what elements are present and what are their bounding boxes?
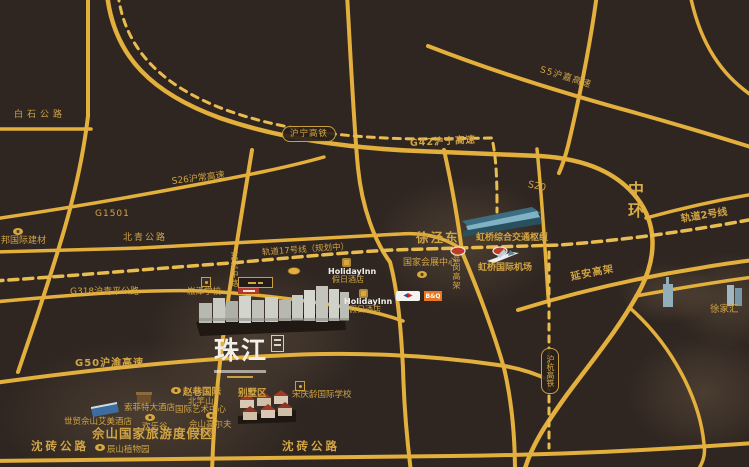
lemeridien-hotel-render <box>91 402 119 417</box>
project-name: 珠江 <box>214 331 268 367</box>
carrefour-logo: ◀▶ <box>396 291 420 301</box>
poi-label-soong-school: 宋庆龄国际学校 <box>292 391 352 400</box>
road-label-g50: G50沪渝高速 <box>75 359 144 369</box>
bq-logo: B&Q <box>424 291 442 301</box>
poi-label-hongqiao-airport: 虹桥国际机场 <box>478 264 532 273</box>
songze-school-icon <box>201 277 211 287</box>
chenshan-icon <box>95 444 105 451</box>
station-rail17-marker <box>288 268 300 275</box>
road-topright-corner <box>690 0 749 97</box>
poi-label-xujiahui: 徐家汇 <box>710 305 739 315</box>
poi-label-hongqiao-hub: 虹桥综合交通枢纽 <box>476 234 548 243</box>
necc-icon <box>417 271 427 278</box>
golf-icon <box>206 412 216 419</box>
road-s5 <box>428 46 749 148</box>
road-label-shenzhuan-east: 沈砖公路 <box>282 441 340 453</box>
road-label-beiqing: 北青公路 <box>123 234 167 243</box>
poi-label-sofitel: 索菲特大酒店 <box>124 404 175 413</box>
project-logo-caption-bar <box>214 370 266 373</box>
poi-label-bang-intl: 邦国际建材 <box>1 237 46 246</box>
road-left-vertical <box>18 0 88 372</box>
poi-label-xujingdong: 徐泾东 <box>416 232 460 245</box>
project-marker-badge <box>238 277 273 288</box>
poi-label-holiday-inn-2-cn: 假日酒店 <box>349 306 381 314</box>
airplane-icon <box>487 249 519 263</box>
road-network <box>0 0 749 467</box>
road-label-jiasong: 嘉松中路 <box>230 252 238 288</box>
zhaoxiang-intl-icon <box>171 387 181 394</box>
road-label-g318: G318沪青平公路 <box>70 288 139 297</box>
holiday-inn-icon-1 <box>342 258 351 267</box>
location-map: 白石公路 沪宁高铁 G42沪宁高速 S5沪嘉高速 S26沪常高速 G1501 北… <box>0 0 749 467</box>
huhang-hsr-label: 沪杭高铁 <box>546 355 554 387</box>
huning-hsr-label: 沪宁高铁 <box>290 130 328 139</box>
poi-label-necc: 国家会展中心 <box>403 259 457 268</box>
road-label-baishi: 白石公路 <box>14 111 66 120</box>
poi-label-beiganshan-2: 国际艺术中心 <box>175 406 226 415</box>
project-logo: 珠江 <box>214 331 284 378</box>
road-label-zhonghuan: 中环 <box>626 181 642 223</box>
road-jiamin <box>444 150 515 467</box>
happy-valley-icon <box>145 414 155 421</box>
project-logo-seal <box>271 335 284 352</box>
huning-hsr-badge: 沪宁高铁 <box>282 126 336 142</box>
poi-label-chenshan: 辰山植物园 <box>107 446 150 455</box>
road-label-shenzhuan-west: 沈砖公路 <box>31 441 89 453</box>
poi-label-songze-school: 崧泽学校 <box>187 288 221 297</box>
bang-intl-icon <box>13 228 23 235</box>
road-label-g1501: G1501 <box>95 210 130 219</box>
poi-label-villa-district: 别墅区 <box>238 389 267 399</box>
road-s26 <box>0 157 324 219</box>
road-bottomright-curve <box>630 308 705 467</box>
sofitel-hotel-render <box>136 392 152 403</box>
road-s20 <box>537 149 549 304</box>
project-logo-subcaption-bar <box>227 376 253 378</box>
project-marker-red-badge <box>238 288 259 294</box>
poi-label-holiday-inn-1-cn: 假日酒店 <box>332 276 364 284</box>
huhang-hsr-badge: 沪杭高铁 <box>541 348 559 394</box>
poi-label-sheshan-resort: 佘山国家旅游度假区 <box>92 428 214 441</box>
